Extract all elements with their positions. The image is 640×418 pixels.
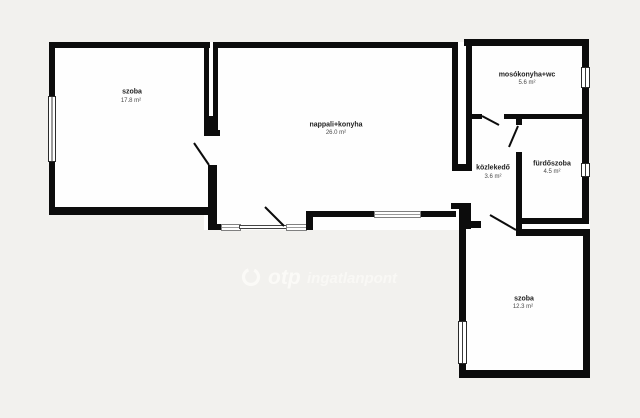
svg-text:otp: otp — [268, 266, 301, 289]
svg-text:ingatlanpont: ingatlanpont — [307, 270, 398, 287]
